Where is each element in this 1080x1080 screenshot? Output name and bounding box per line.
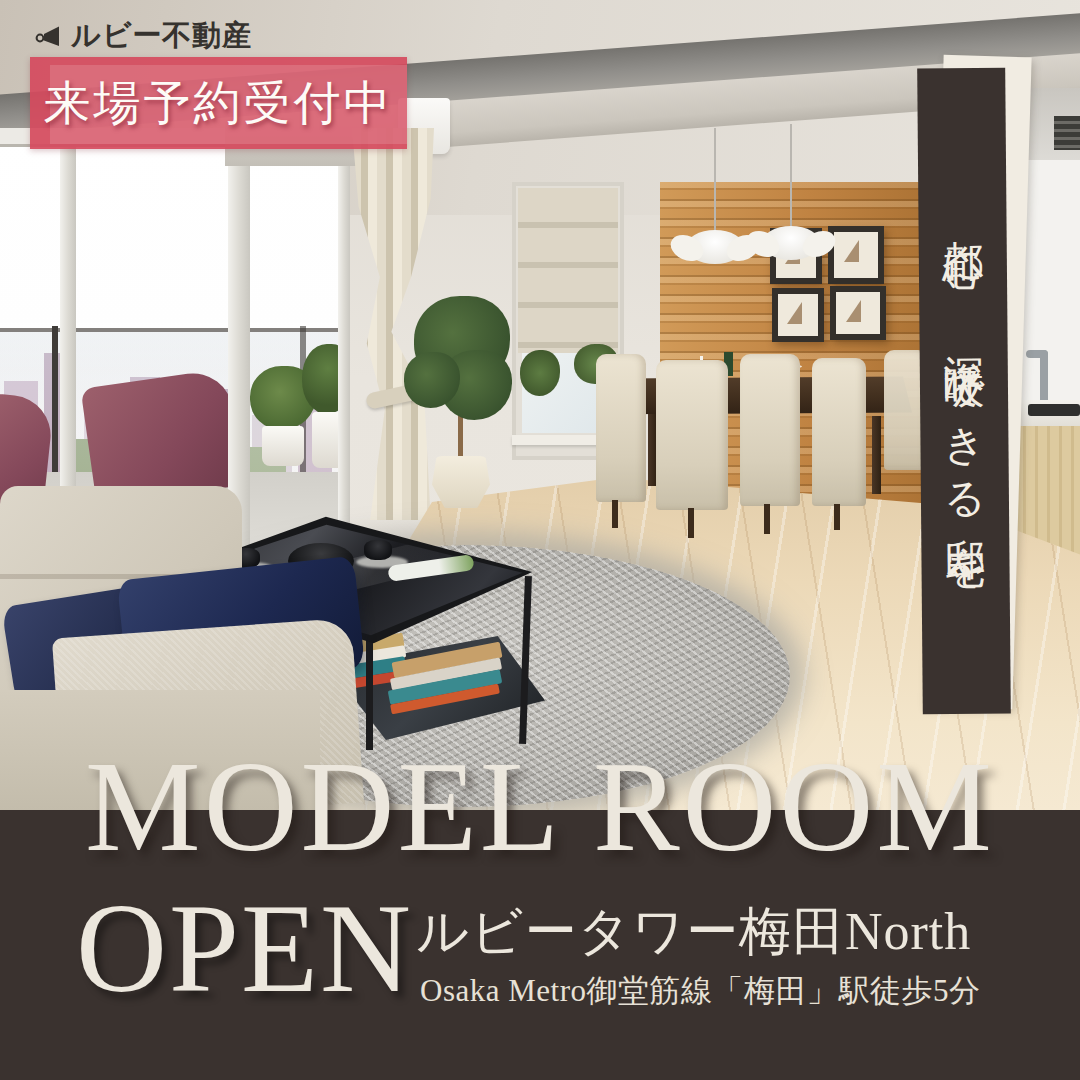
real-estate-ad-poster: ルビー不動産 来場予約受付中 都心に、深呼吸できる邸宅を MODEL ROOM …: [0, 0, 1080, 1080]
dining-chair: [656, 360, 728, 510]
picture-frame: [828, 226, 884, 284]
picture-frame: [772, 288, 824, 342]
property-access: Osaka Metro御堂筋線「梅田」駅徒歩5分: [420, 970, 980, 1012]
plant-pot: [432, 456, 490, 508]
roman-shade: [518, 188, 618, 353]
kitchen-vent: [1054, 116, 1080, 150]
megaphone-icon: [34, 21, 64, 51]
dining-chair: [596, 354, 646, 502]
reservation-banner: 来場予約受付中: [30, 57, 407, 149]
headline-open: OPEN: [76, 886, 413, 1012]
picture-frame: [830, 286, 886, 340]
dining-chair: [812, 358, 866, 506]
pendant-light: [686, 230, 744, 264]
brand-logo: ルビー不動産: [34, 16, 252, 56]
pendant-cord: [714, 128, 716, 232]
pendant-light: [762, 226, 820, 260]
headline-model-room: MODEL ROOM: [85, 741, 995, 871]
tagline-panel: 都心に、深呼吸できる邸宅を: [917, 68, 1011, 715]
property-name: ルビータワー梅田North: [416, 903, 971, 960]
dining-chair: [740, 354, 800, 506]
brand-name: ルビー不動産: [71, 16, 252, 56]
reservation-banner-label: 来場予約受付中: [30, 57, 407, 149]
pendant-cord: [790, 124, 792, 228]
cup: [364, 540, 392, 560]
vertical-tagline-text: 都心に、深呼吸できる邸宅を: [942, 208, 986, 574]
vertical-tagline-banner: 都心に、深呼吸できる邸宅を: [916, 54, 1036, 730]
